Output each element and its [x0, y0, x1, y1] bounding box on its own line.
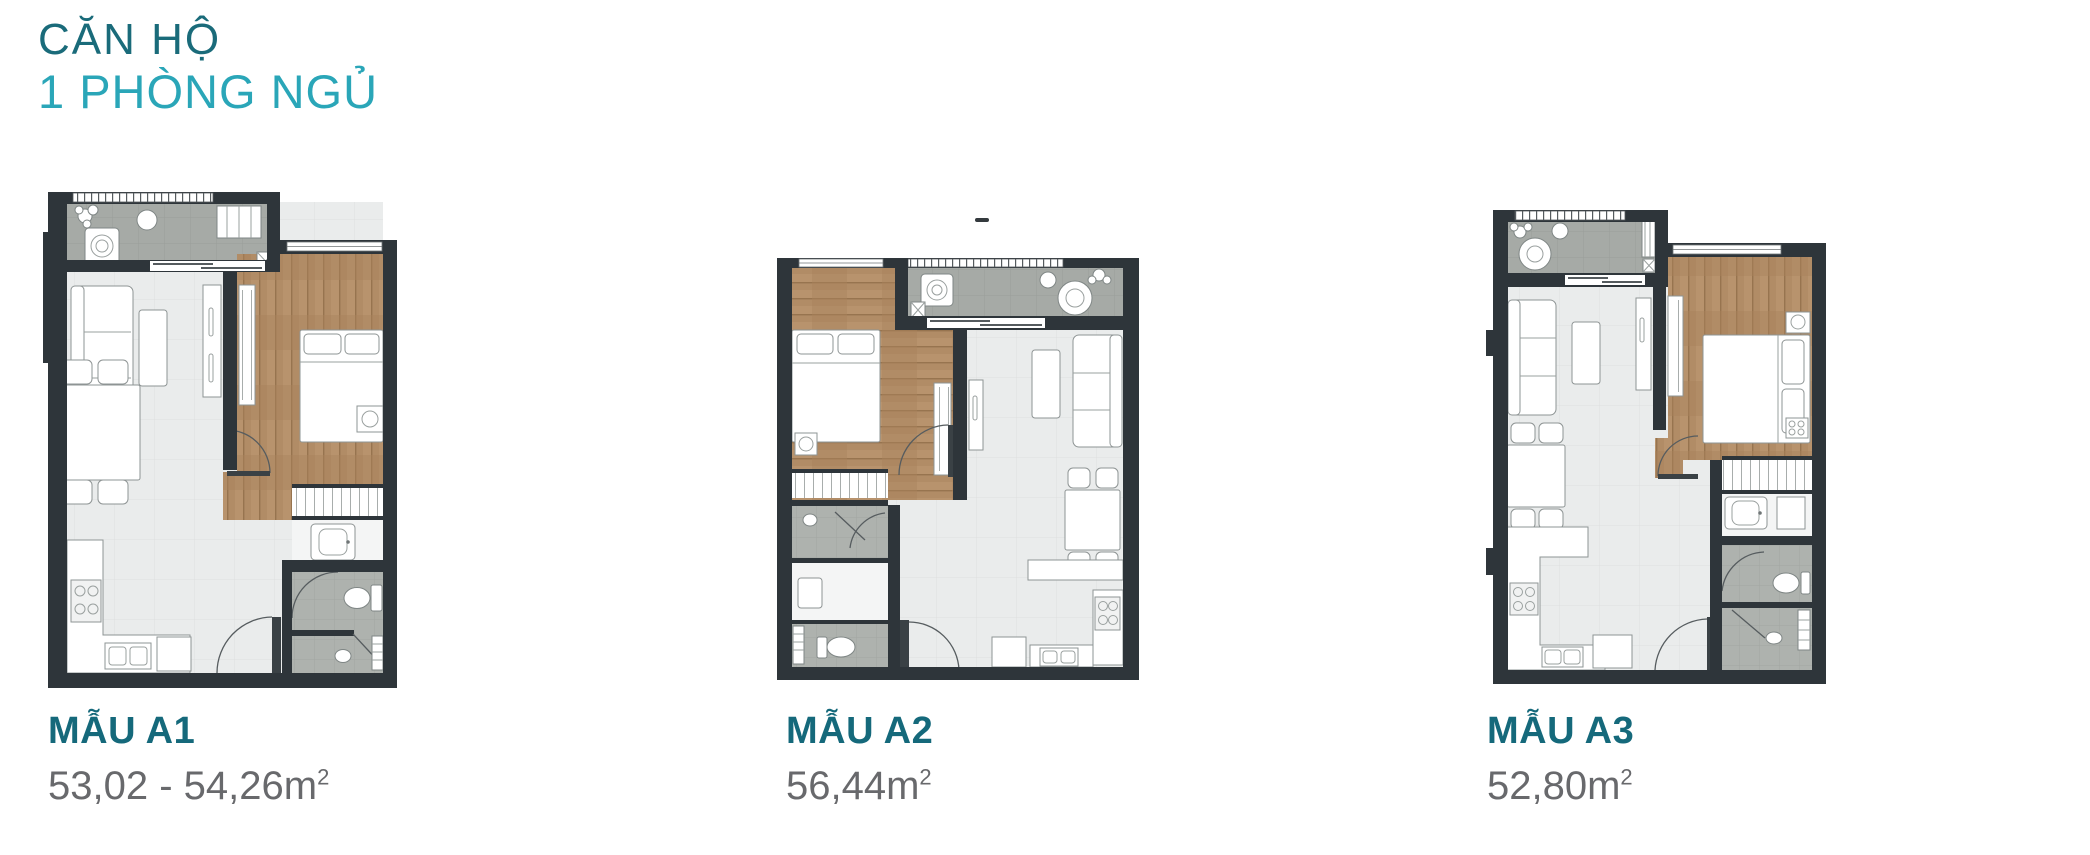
partition-wall	[223, 272, 237, 470]
sofa-icon	[1508, 300, 1556, 415]
washing-machine-icon	[85, 228, 119, 264]
page-title: CĂN HỘ 1 PHÒNG NGỦ	[38, 18, 378, 115]
wall-pillar	[43, 232, 67, 363]
wall-pillar	[1486, 548, 1508, 575]
stove-icon	[71, 580, 101, 622]
cabinet-icon	[992, 637, 1026, 667]
dressing-table-icon	[795, 433, 817, 455]
coffee-table-icon	[1572, 322, 1600, 384]
stove-icon	[1095, 597, 1120, 630]
bedroom-door-leaf	[1658, 474, 1698, 479]
shower-basin-icon	[335, 650, 351, 663]
balcony-stool-icon	[1552, 223, 1568, 239]
page-title-line1: CĂN HỘ	[38, 18, 378, 62]
bedroom-window	[1673, 245, 1781, 254]
shower-screen	[372, 636, 383, 670]
a1-wardrobe-strip	[292, 488, 383, 516]
hall-cabinet-icon	[798, 578, 822, 608]
wall-pillar	[1486, 330, 1508, 356]
a2-shower-room-floor	[792, 506, 888, 558]
unit-a3-label: MẪU A3	[1487, 710, 1634, 753]
toilet-icon	[817, 637, 855, 658]
balcony-slider	[927, 318, 1045, 328]
kitchen-island	[1028, 560, 1123, 580]
entry-door-leaf	[900, 620, 909, 670]
shower-divider-wall	[292, 630, 354, 636]
coffee-table-icon	[1032, 350, 1060, 418]
coffee-table-icon	[139, 310, 167, 386]
toilet-icon	[344, 585, 382, 611]
dining-table-icon	[57, 360, 140, 504]
wardrobe	[1668, 296, 1683, 396]
unit-a1-area-sup: 2	[317, 765, 329, 790]
washbasin-icon	[311, 524, 355, 560]
unit-a3-area-sup: 2	[1620, 765, 1632, 790]
a2-wardrobe-strip	[792, 473, 888, 498]
ac-unit-icon	[911, 302, 925, 318]
balcony-stool-icon	[1040, 272, 1056, 288]
balcony-slider	[150, 261, 265, 271]
unit-a2-area-sup: 2	[919, 765, 931, 790]
toilet-icon	[1773, 572, 1810, 594]
bed-icon	[792, 330, 880, 442]
balcony-railing	[1515, 211, 1625, 220]
stove-icon	[1510, 583, 1538, 615]
floor-plan-a1	[35, 140, 397, 688]
dressing-table-icon	[357, 406, 383, 432]
tv-console	[203, 285, 221, 397]
partition-wall	[953, 330, 967, 500]
unit-a1-area-value: 53,02 - 54,26m	[48, 764, 317, 808]
unit-a1-area: 53,02 - 54,26m2	[48, 764, 329, 809]
sink-icon	[1542, 647, 1583, 667]
bedroom-door-leaf	[948, 425, 953, 477]
shower-screen	[793, 626, 804, 664]
bedroom-window	[287, 242, 382, 251]
entry-door-leaf	[272, 617, 281, 673]
shower-basin-icon	[803, 514, 817, 526]
bath-cabinet-icon	[1777, 497, 1805, 529]
vanity-stool-icon	[1786, 418, 1808, 438]
sink-icon	[105, 643, 151, 669]
cabinet-icon	[157, 637, 191, 671]
shower-screen	[1798, 610, 1810, 650]
sofa-icon	[1073, 335, 1122, 447]
floor-plan-a3	[1480, 206, 1832, 684]
partition-wall	[1653, 287, 1666, 430]
washing-machine-icon	[921, 274, 953, 306]
balcony-slider	[1565, 275, 1645, 285]
tv-console	[969, 380, 983, 450]
unit-a3-area-value: 52,80m	[1487, 764, 1620, 808]
floor-plan-a2	[777, 218, 1139, 683]
unit-a3-area: 52,80m2	[1487, 764, 1633, 809]
balcony-railing	[73, 193, 213, 202]
cabinet-icon	[1593, 635, 1632, 668]
unit-a1-label: MẪU A1	[48, 710, 195, 753]
unit-a2-area-value: 56,44m	[786, 764, 919, 808]
wardrobe	[239, 285, 255, 405]
balcony-table-icon	[1519, 238, 1551, 270]
ac-unit-icon	[1643, 259, 1655, 272]
sink-icon	[1040, 648, 1078, 666]
unit-a2-area: 56,44m2	[786, 764, 932, 809]
page-title-line2: 1 PHÒNG NGỦ	[38, 68, 378, 115]
dressing-table-icon	[1786, 312, 1810, 333]
bedroom-window	[799, 259, 883, 267]
bedroom-door-leaf	[227, 471, 270, 476]
balcony-table-icon	[1058, 281, 1092, 315]
ac-condenser-icon	[217, 206, 261, 238]
brochure-page: CĂN HỘ 1 PHÒNG NGỦ	[0, 0, 2090, 855]
a2-top-mark	[975, 218, 989, 222]
unit-a2-label: MẪU A2	[786, 710, 933, 753]
shower-divider-wall	[1722, 602, 1812, 608]
shower-basin-icon	[1766, 632, 1782, 644]
balcony-stool-icon	[137, 210, 157, 230]
tv-console	[1636, 298, 1651, 390]
balcony-railing	[908, 259, 1063, 267]
a3-wardrobe-strip	[1722, 460, 1812, 490]
washbasin-icon	[1725, 497, 1767, 529]
